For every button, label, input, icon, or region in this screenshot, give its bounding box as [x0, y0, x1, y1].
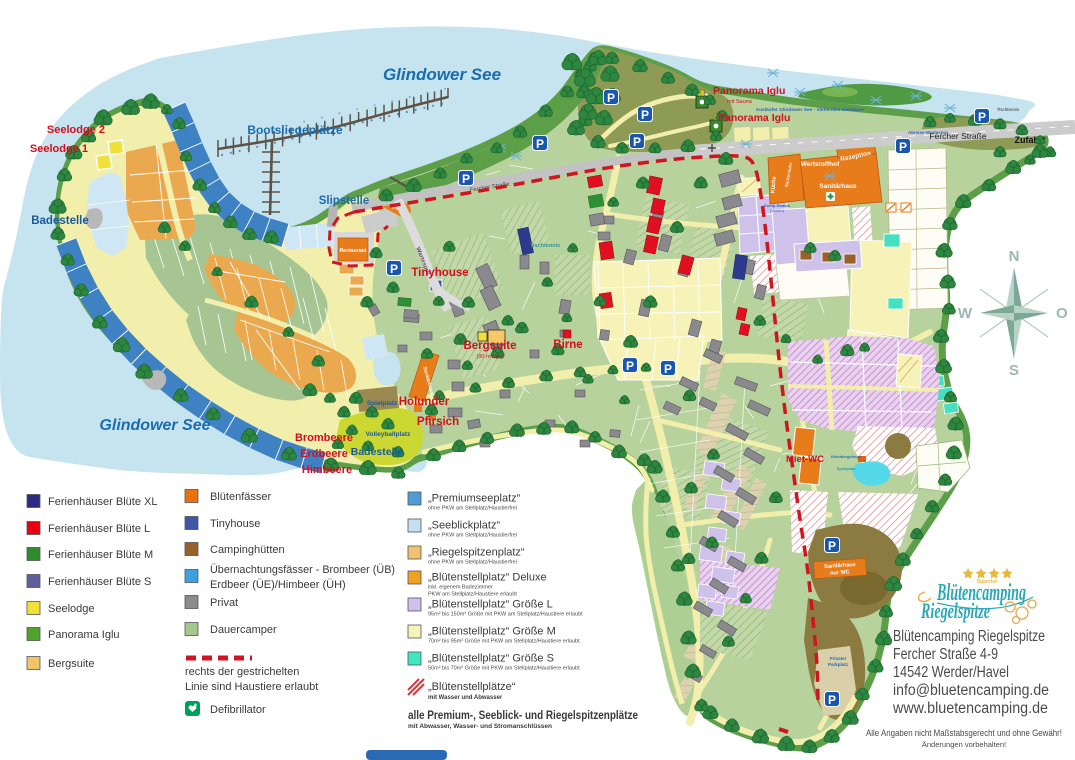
- svg-text:Panorama Iglu: Panorama Iglu: [48, 629, 120, 641]
- svg-text:Seelodge 1: Seelodge 1: [30, 143, 88, 155]
- svg-text:Erdbeer (ÜE)/Himbeer (ÜH): Erdbeer (ÜE)/Himbeer (ÜH): [210, 579, 346, 591]
- svg-text:Tinyhouse: Tinyhouse: [210, 518, 260, 530]
- svg-text:„Blütenstellplatz“ Deluxe: „Blütenstellplatz“ Deluxe: [428, 572, 547, 584]
- svg-text:Privat: Privat: [210, 597, 238, 609]
- svg-text:Ferienhäuser Blüte L: Ferienhäuser Blüte L: [48, 523, 150, 535]
- svg-text:O: O: [1056, 305, 1068, 322]
- svg-text:Erdbeere: Erdbeere: [300, 448, 348, 460]
- svg-text:ohne PKW am Stellplatz/Haustie: ohne PKW am Stellplatz/Haustierfrei: [428, 560, 517, 566]
- svg-text:mit Wasser und Abwasser: mit Wasser und Abwasser: [428, 695, 503, 701]
- svg-text:Brombeere: Brombeere: [295, 432, 353, 444]
- svg-text:Holunder: Holunder: [399, 396, 450, 408]
- svg-text:P: P: [978, 110, 986, 124]
- svg-text:Kleintiergehege: Kleintiergehege: [831, 454, 862, 459]
- svg-text:Volleyballplatz: Volleyballplatz: [366, 431, 411, 438]
- svg-text:Spielplatz: Spielplatz: [367, 400, 398, 407]
- svg-text:„Blütenstellplätze“: „Blütenstellplätze“: [428, 681, 516, 693]
- svg-text:inkl. eigenem Badezimmer: inkl. eigenem Badezimmer: [428, 585, 493, 591]
- svg-text:Spielplatz: Spielplatz: [837, 466, 856, 471]
- svg-text:Dauercamper: Dauercamper: [210, 624, 277, 636]
- svg-text:Privater: Privater: [830, 656, 847, 661]
- svg-text:Riegelspitze: Riegelspitze: [920, 598, 990, 623]
- svg-text:P: P: [828, 539, 836, 553]
- svg-text:Defibrillator: Defibrillator: [210, 704, 266, 716]
- svg-text:P: P: [633, 135, 641, 149]
- svg-text:Seelodge: Seelodge: [48, 603, 95, 615]
- svg-text:Miet-WC: Miet-WC: [786, 454, 824, 465]
- svg-text:Glindower See: Glindower See: [383, 65, 501, 84]
- svg-text:Restaurant: Restaurant: [339, 248, 366, 254]
- svg-text:N: N: [1009, 248, 1020, 265]
- svg-text:Bergsuite: Bergsuite: [463, 340, 516, 352]
- svg-text:„Premiumseeplatz“: „Premiumseeplatz“: [428, 493, 521, 505]
- svg-text:alle Premium-, Seeblick- und R: alle Premium-, Seeblick- und Riegelspitz…: [408, 710, 638, 722]
- svg-text:Bootsliegeplätze: Bootsliegeplätze: [247, 123, 343, 137]
- svg-text:Seelodge 2: Seelodge 2: [47, 124, 105, 136]
- svg-text:Fercher Straße 4-9: Fercher Straße 4-9: [893, 646, 998, 663]
- svg-text:Ferienhäuser Blüte S: Ferienhäuser Blüte S: [48, 576, 151, 588]
- svg-text:Campinghütten: Campinghütten: [210, 544, 285, 556]
- svg-text:Tischtennis: Tischtennis: [997, 107, 1020, 112]
- svg-text:Himbeere: Himbeere: [302, 464, 352, 476]
- svg-text:„Seeblickplatz“: „Seeblickplatz“: [428, 520, 500, 532]
- svg-text:Übernachtungsfässer - Brombeer: Übernachtungsfässer - Brombeer (ÜB): [210, 564, 395, 576]
- svg-text:P: P: [641, 108, 649, 122]
- svg-text:14542 Werder/Havel: 14542 Werder/Havel: [893, 664, 1009, 681]
- svg-text:Badestelle: Badestelle: [31, 215, 89, 227]
- svg-text:P: P: [607, 91, 615, 105]
- svg-text:Blütenfässer: Blütenfässer: [210, 491, 271, 503]
- svg-text:Ferienhäuser Blüte M: Ferienhäuser Blüte M: [48, 549, 153, 561]
- svg-text:Glindower See: Glindower See: [99, 417, 210, 434]
- svg-text:Tinyhouse: Tinyhouse: [411, 267, 468, 279]
- svg-text:Slipstelle: Slipstelle: [319, 195, 370, 207]
- svg-text:P: P: [626, 359, 634, 373]
- svg-text:Panorama Iglu: Panorama Iglu: [713, 85, 785, 97]
- svg-text:ohne PKW am Stellplatz/Haustie: ohne PKW am Stellplatz/Haustierfrei: [428, 506, 517, 512]
- svg-text:ohne PKW am Stellplatz/Haustie: ohne PKW am Stellplatz/Haustierfrei: [428, 533, 517, 539]
- svg-text:Pfirsich: Pfirsich: [417, 416, 459, 428]
- svg-text:Tischtennis: Tischtennis: [530, 243, 560, 249]
- svg-text:Sanitärhaus: Sanitärhaus: [819, 183, 857, 190]
- svg-text:95m² bis 150m² Größe mit PKW a: 95m² bis 150m² Größe mit PKW am Stellpla…: [428, 612, 583, 618]
- svg-text:P: P: [536, 137, 544, 151]
- svg-text:50m² bis 70m² Größe mit PKW am: 50m² bis 70m² Größe mit PKW am Stellplat…: [428, 666, 580, 672]
- svg-text:Bergsuite: Bergsuite: [48, 658, 94, 670]
- svg-text:Ausläufer Glindower See - steh: Ausläufer Glindower See - stehendes Gewä…: [756, 107, 865, 113]
- svg-text:„Blütenstellplatz“ Größe M: „Blütenstellplatz“ Größe M: [428, 626, 556, 638]
- svg-text:www.bluetencamping.de: www.bluetencamping.de: [892, 700, 1048, 717]
- svg-text:Blütencamping Riegelspitze: Blütencamping Riegelspitze: [893, 628, 1045, 645]
- svg-text:info@bluetencamping.de: info@bluetencamping.de: [893, 682, 1049, 699]
- svg-text:Abreise-Wartespur: Abreise-Wartespur: [908, 130, 948, 135]
- svg-text:P: P: [664, 362, 672, 376]
- svg-text:Alle Angaben nicht Maßstabsger: Alle Angaben nicht Maßstabsgerecht und o…: [866, 728, 1062, 739]
- svg-text:P: P: [390, 262, 398, 276]
- svg-text:Linie sind Haustiere erlaubt: Linie sind Haustiere erlaubt: [185, 681, 318, 693]
- svg-text:„Blütenstellplatz“ Größe L: „Blütenstellplatz“ Größe L: [428, 599, 553, 611]
- svg-text:70m² bis 95m² Größe mit PKW am: 70m² bis 95m² Größe mit PKW am Stellplat…: [428, 639, 580, 645]
- svg-text:Parkplatz: Parkplatz: [828, 662, 849, 667]
- svg-text:Ferienhäuser Blüte XL: Ferienhäuser Blüte XL: [48, 496, 157, 508]
- svg-text:P: P: [899, 140, 907, 154]
- svg-text:PKW am Stellplatz/Haustiere er: PKW am Stellplatz/Haustiere erlaubt: [428, 592, 517, 598]
- svg-text:rechts der gestrichelten: rechts der gestrichelten: [185, 666, 299, 678]
- svg-text:Birne: Birne: [553, 339, 582, 351]
- svg-text:Wertstoffhof: Wertstoffhof: [801, 161, 840, 168]
- svg-text:Badestelle: Badestelle: [351, 446, 404, 458]
- svg-text:S: S: [1009, 362, 1019, 379]
- svg-text:„Blütenstellplatz“ Größe S: „Blütenstellplatz“ Größe S: [428, 653, 554, 665]
- svg-text:(WoMo): (WoMo): [770, 208, 785, 213]
- svg-text:„Riegelspitzenplatz“: „Riegelspitzenplatz“: [428, 547, 525, 559]
- svg-text:mit Sauna: mit Sauna: [727, 99, 753, 105]
- svg-text:Änderungen vorbehalten!: Änderungen vorbehalten!: [922, 740, 1006, 749]
- svg-text:P: P: [462, 172, 470, 186]
- svg-text:(90 m²/qm): (90 m²/qm): [477, 354, 504, 360]
- svg-text:Panorama Iglu: Panorama Iglu: [718, 112, 790, 124]
- svg-text:mit Abwasser, Wasser- und Stro: mit Abwasser, Wasser- und Stromanschlüss…: [408, 723, 552, 730]
- svg-text:P: P: [828, 693, 836, 707]
- svg-text:W: W: [958, 305, 973, 322]
